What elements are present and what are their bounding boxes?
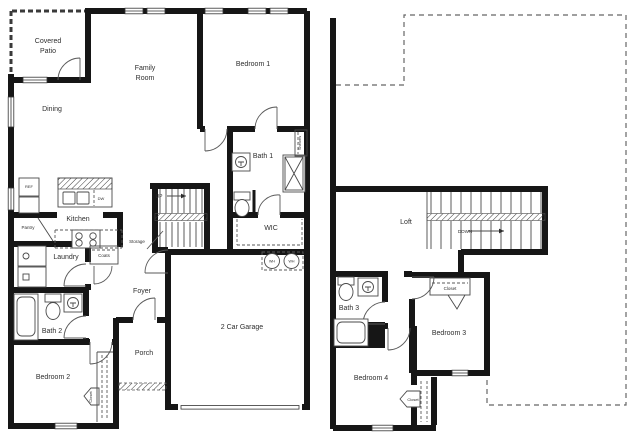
second-floor-plan: Loft DOWN Bath 3 Bedroom 3 Bedroom 4 Clo…	[333, 15, 626, 431]
porch-edge	[119, 383, 166, 390]
room-label-covered-patio-line1: Covered	[35, 38, 62, 45]
bath3-wall-block	[368, 322, 385, 348]
room-label-garage: 2 Car Garage	[221, 324, 264, 331]
room-label-bath3: Bath 3	[339, 305, 359, 312]
label-down: DOWN	[458, 229, 472, 234]
room-label-family-room-line1: Family	[135, 65, 156, 72]
label-closet-bedroom3: Closet	[444, 286, 458, 291]
room-label-wic: WIC	[264, 225, 278, 232]
room-label-bedroom4: Bedroom 4	[354, 375, 388, 382]
room-label-kitchen: Kitchen	[66, 216, 89, 223]
label-up: UP	[156, 194, 164, 200]
floor-plan-page: Covered Patio Dining Family Room Bedroom…	[0, 0, 640, 441]
garage-door	[178, 404, 302, 411]
room-label-bedroom1: Bedroom 1	[236, 61, 270, 68]
label-coats: Coats	[98, 253, 111, 258]
label-shelves: Shelves	[297, 136, 302, 150]
room-label-dining: Dining	[42, 106, 62, 113]
room-label-bath1: Bath 1	[253, 153, 273, 160]
bedroom3-closet	[430, 278, 470, 309]
first-floor-plan: Covered Patio Dining Family Room Bedroom…	[8, 8, 307, 429]
room-label-bedroom3: Bedroom 3	[432, 330, 466, 337]
room-label-family-room-line2: Room	[136, 75, 155, 82]
room-label-porch: Porch	[135, 350, 153, 357]
room-label-laundry: Laundry	[53, 254, 79, 261]
label-storage: Storage	[129, 239, 145, 244]
stairs-second-floor	[427, 192, 545, 249]
label-closet-bedroom2: Closet	[88, 390, 93, 402]
wic-rod-lines	[237, 219, 302, 245]
label-wh-2: WH	[289, 260, 295, 264]
label-closet-bedroom4: Closet	[407, 397, 419, 402]
floor-plan-drawing: Covered Patio Dining Family Room Bedroom…	[0, 0, 640, 441]
label-wh-1: WH	[269, 260, 275, 264]
room-label-loft: Loft	[400, 219, 412, 226]
room-label-covered-patio-line2: Patio	[40, 48, 56, 55]
label-dw: DW	[98, 196, 105, 201]
room-label-bedroom2: Bedroom 2	[36, 374, 70, 381]
kitchen-island	[58, 178, 112, 207]
room-label-bath2: Bath 2	[42, 328, 62, 335]
pantry-door	[38, 218, 53, 241]
second-floor-walls	[333, 18, 548, 429]
room-label-foyer: Foyer	[133, 288, 152, 295]
label-ref: REF	[25, 184, 34, 189]
room-label-pantry: Pantry	[21, 225, 35, 230]
stairs-first-floor	[155, 189, 207, 247]
bath1-fixtures	[232, 153, 305, 217]
washer-dryer	[18, 246, 46, 287]
